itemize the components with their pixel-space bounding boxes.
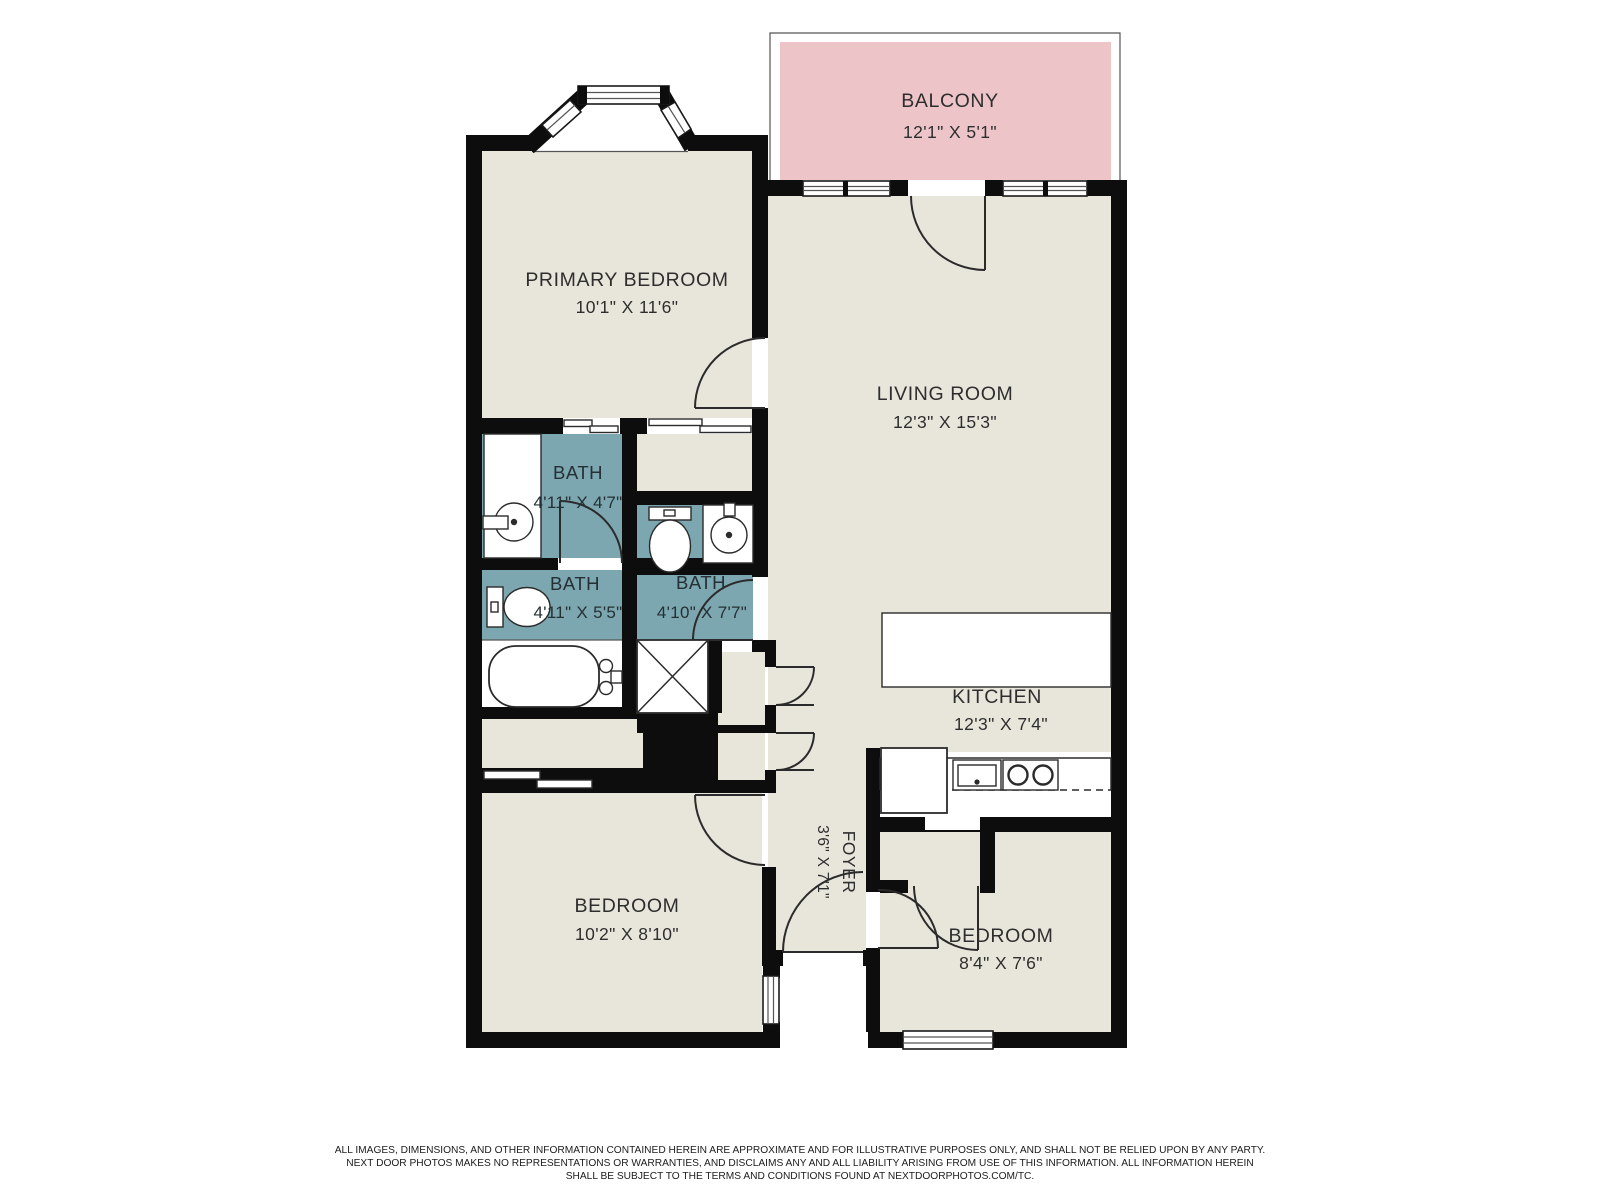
floorplan-drawing: BALCONY 12'1" X 5'1" PRIMARY BEDROOM 10'… [0,0,1600,1200]
bath2-dims: 4'11" X 5'5" [534,603,623,622]
living-room-dims: 12'3" X 15'3" [893,412,997,432]
closet-slider-panel [649,419,702,426]
bath1-vanity [483,434,541,558]
burner-icon [1034,766,1053,785]
primary-bedroom-dims: 10'1" X 11'6" [576,297,679,317]
living-room-label: LIVING ROOM [877,383,1014,405]
bath1-pocket-door [590,426,618,433]
floorplan-page: BALCONY 12'1" X 5'1" PRIMARY BEDROOM 10'… [0,0,1600,1200]
bedroom2-dims: 8'4" X 7'6" [959,953,1043,973]
bath3-vanity [703,503,753,563]
walkin-closet-floor [637,434,752,491]
bedroom1-dims: 10'2" X 8'10" [575,924,679,944]
foyer-label: FOYER [839,831,859,894]
vestibule-floor [718,652,765,725]
kitchen-island [882,613,1111,687]
refrigerator [881,748,947,813]
burner-icon [1009,766,1028,785]
bath1-label: BATH [553,462,603,483]
entry-side-window [763,976,779,1024]
bedroom2-label: BEDROOM [949,925,1054,947]
sink-drain [974,779,979,784]
bath2-label: BATH [550,573,600,594]
hall-closet-floor [482,719,643,768]
bath3-dims: 4'10" X 7'7" [657,603,747,622]
bay-window-center-glass [578,86,669,104]
linen-closet-floor [718,733,765,780]
disclaimer-line1: ALL IMAGES, DIMENSIONS, AND OTHER INFORM… [335,1145,1265,1156]
closet-slider-panel [700,426,751,433]
foyer-dims: 3'6" X 7'1" [814,825,831,899]
window-divider [843,181,848,196]
bath1-dims: 4'11" X 4'7" [534,493,623,512]
primary-bedroom-label: PRIMARY BEDROOM [525,269,728,291]
shower [637,640,708,713]
bedroom1-label: BEDROOM [575,895,680,917]
bedroom2-window [903,1031,993,1049]
window-divider [1043,181,1048,196]
bedroom1-closet-slider [537,780,592,788]
bath3-toilet [649,507,691,572]
bath3-label: BATH [676,572,726,593]
bay-window-cap-left [578,86,587,104]
balcony-label: BALCONY [901,90,998,112]
disclaimer-line3: SHALL BE SUBJECT TO THE TERMS AND CONDIT… [566,1171,1035,1182]
kitchen-dims: 12'3" X 7'4" [954,714,1048,734]
kitchen-label: KITCHEN [952,686,1042,708]
bay-window-cap-right [660,86,669,104]
bath1-pocket-door [564,420,592,427]
foyer-floor [768,640,866,952]
disclaimer-line2: NEXT DOOR PHOTOS MAKES NO REPRESENTATION… [346,1158,1253,1169]
bedroom1-closet-slider [484,771,540,779]
balcony-dims: 12'1" X 5'1" [903,122,997,142]
